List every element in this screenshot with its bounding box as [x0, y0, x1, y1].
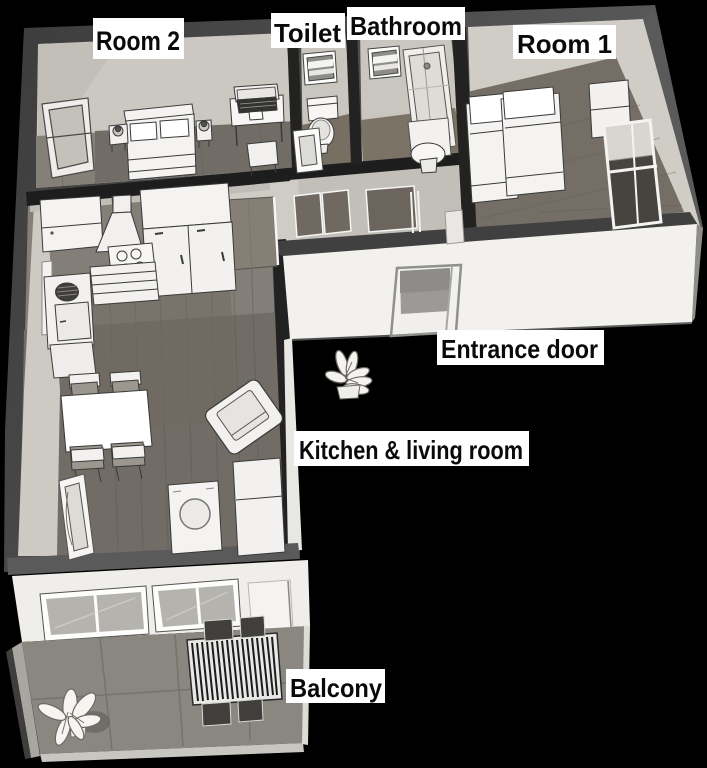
svg-text:Bathroom: Bathroom — [350, 11, 462, 41]
svg-text:Room 2: Room 2 — [96, 26, 180, 56]
svg-text:Entrance door: Entrance door — [441, 334, 598, 364]
svg-text:Room 1: Room 1 — [517, 29, 612, 59]
svg-text:Toilet: Toilet — [274, 18, 341, 48]
svg-text:Kitchen & living room: Kitchen & living room — [299, 435, 523, 465]
svg-text:Balcony: Balcony — [290, 673, 382, 703]
